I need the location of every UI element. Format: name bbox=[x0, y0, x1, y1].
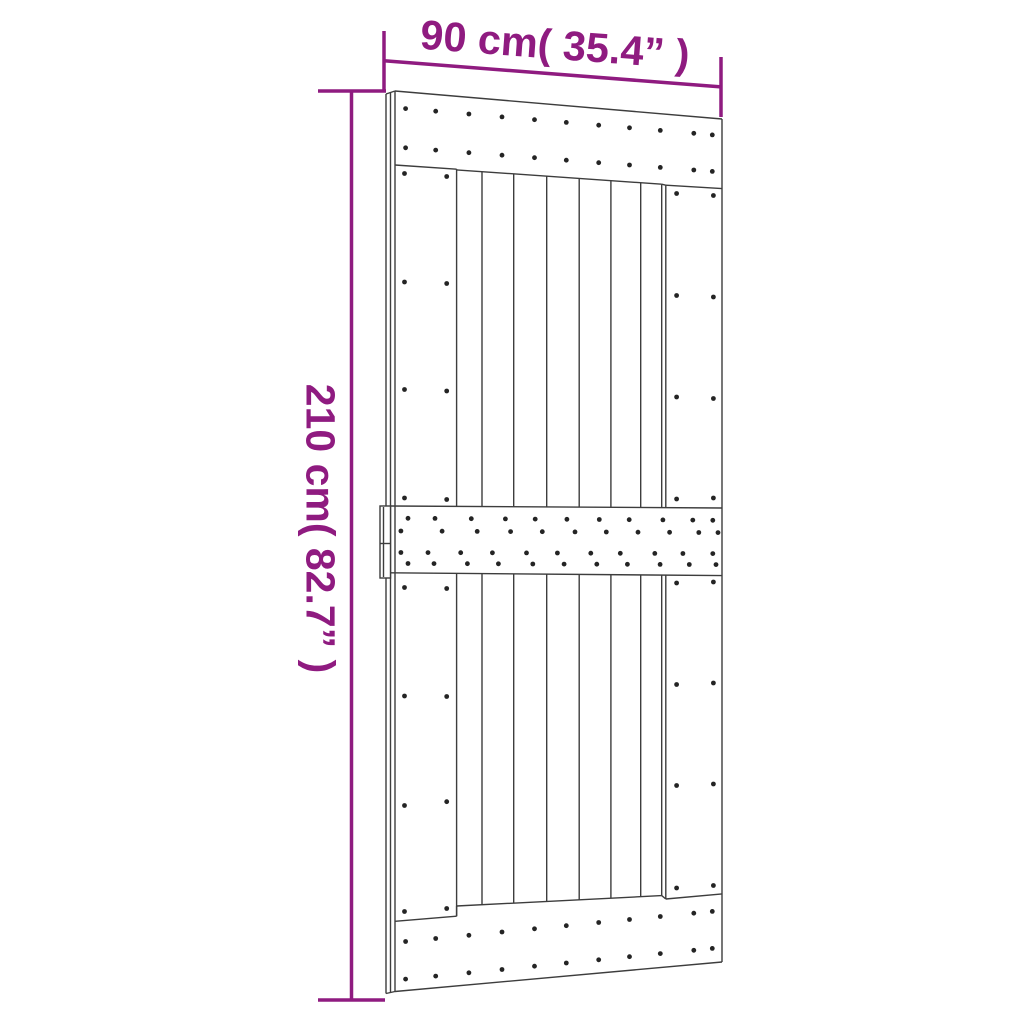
svg-text:210 cm( 82.7” ): 210 cm( 82.7” ) bbox=[298, 384, 344, 673]
